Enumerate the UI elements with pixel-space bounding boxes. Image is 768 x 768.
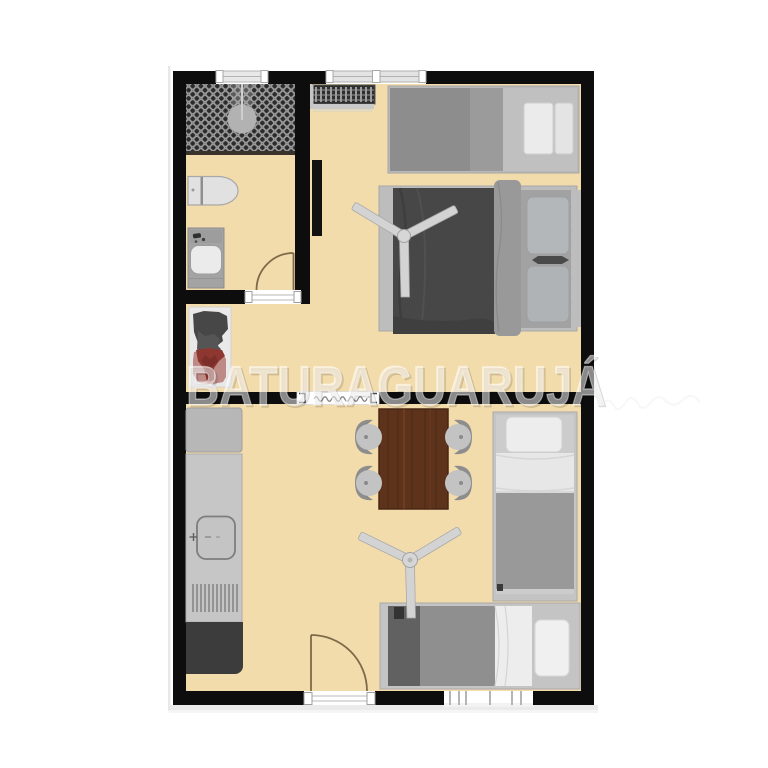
svg-text:BATURAGUARUJÁ: BATURAGUARUJÁ — [186, 354, 605, 417]
